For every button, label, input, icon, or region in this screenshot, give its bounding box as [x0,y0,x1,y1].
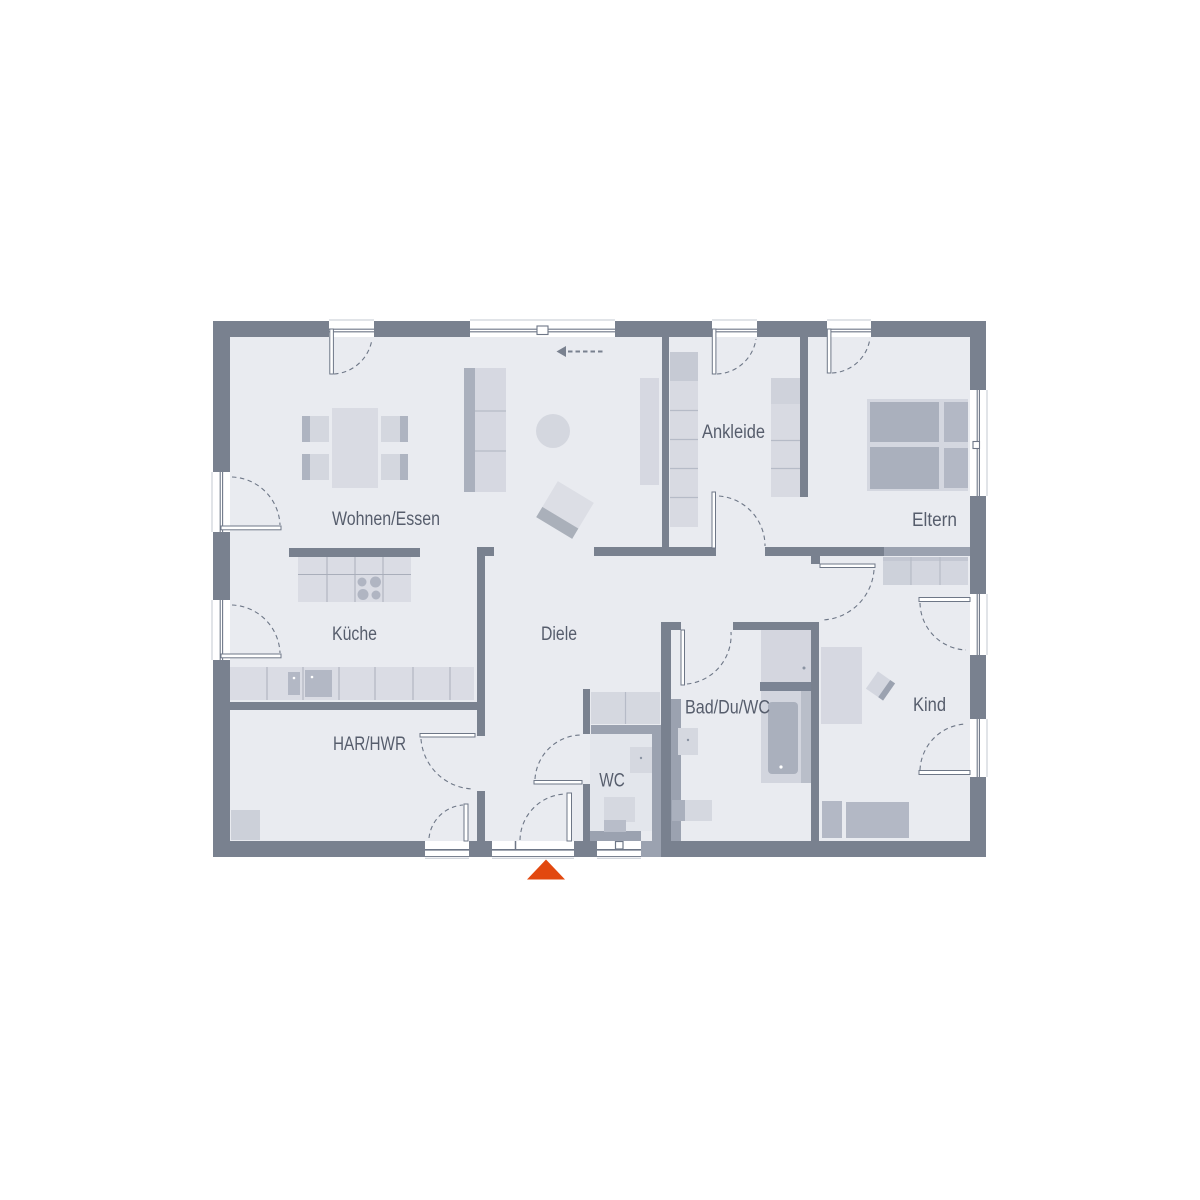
svg-text:Ankleide: Ankleide [702,422,765,443]
svg-text:Bad/Du/WC: Bad/Du/WC [685,698,770,719]
svg-text:Diele: Diele [541,624,577,645]
svg-text:HAR/HWR: HAR/HWR [333,734,406,755]
svg-text:Wohnen/Essen: Wohnen/Essen [332,509,440,530]
svg-text:WC: WC [599,771,625,792]
svg-text:Eltern: Eltern [912,510,957,531]
svg-text:Kind: Kind [913,695,946,716]
svg-text:Küche: Küche [332,624,377,645]
